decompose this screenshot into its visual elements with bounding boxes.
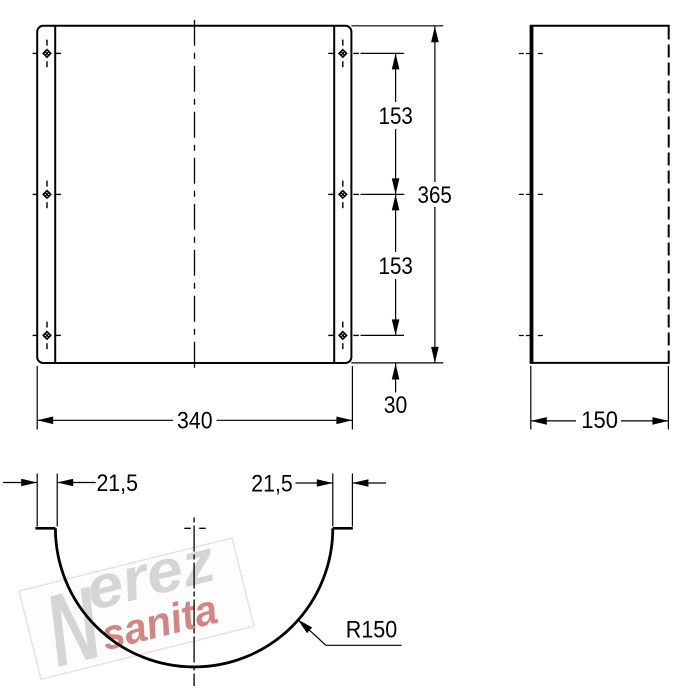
svg-text:365: 365 xyxy=(418,182,452,209)
svg-text:153: 153 xyxy=(379,253,413,280)
svg-text:153: 153 xyxy=(379,103,413,130)
svg-text:21,5: 21,5 xyxy=(96,470,138,497)
svg-text:21,5: 21,5 xyxy=(251,471,293,498)
svg-text:150: 150 xyxy=(581,407,618,434)
svg-text:R150: R150 xyxy=(346,616,397,643)
svg-text:30: 30 xyxy=(384,392,408,419)
svg-text:340: 340 xyxy=(177,408,213,435)
